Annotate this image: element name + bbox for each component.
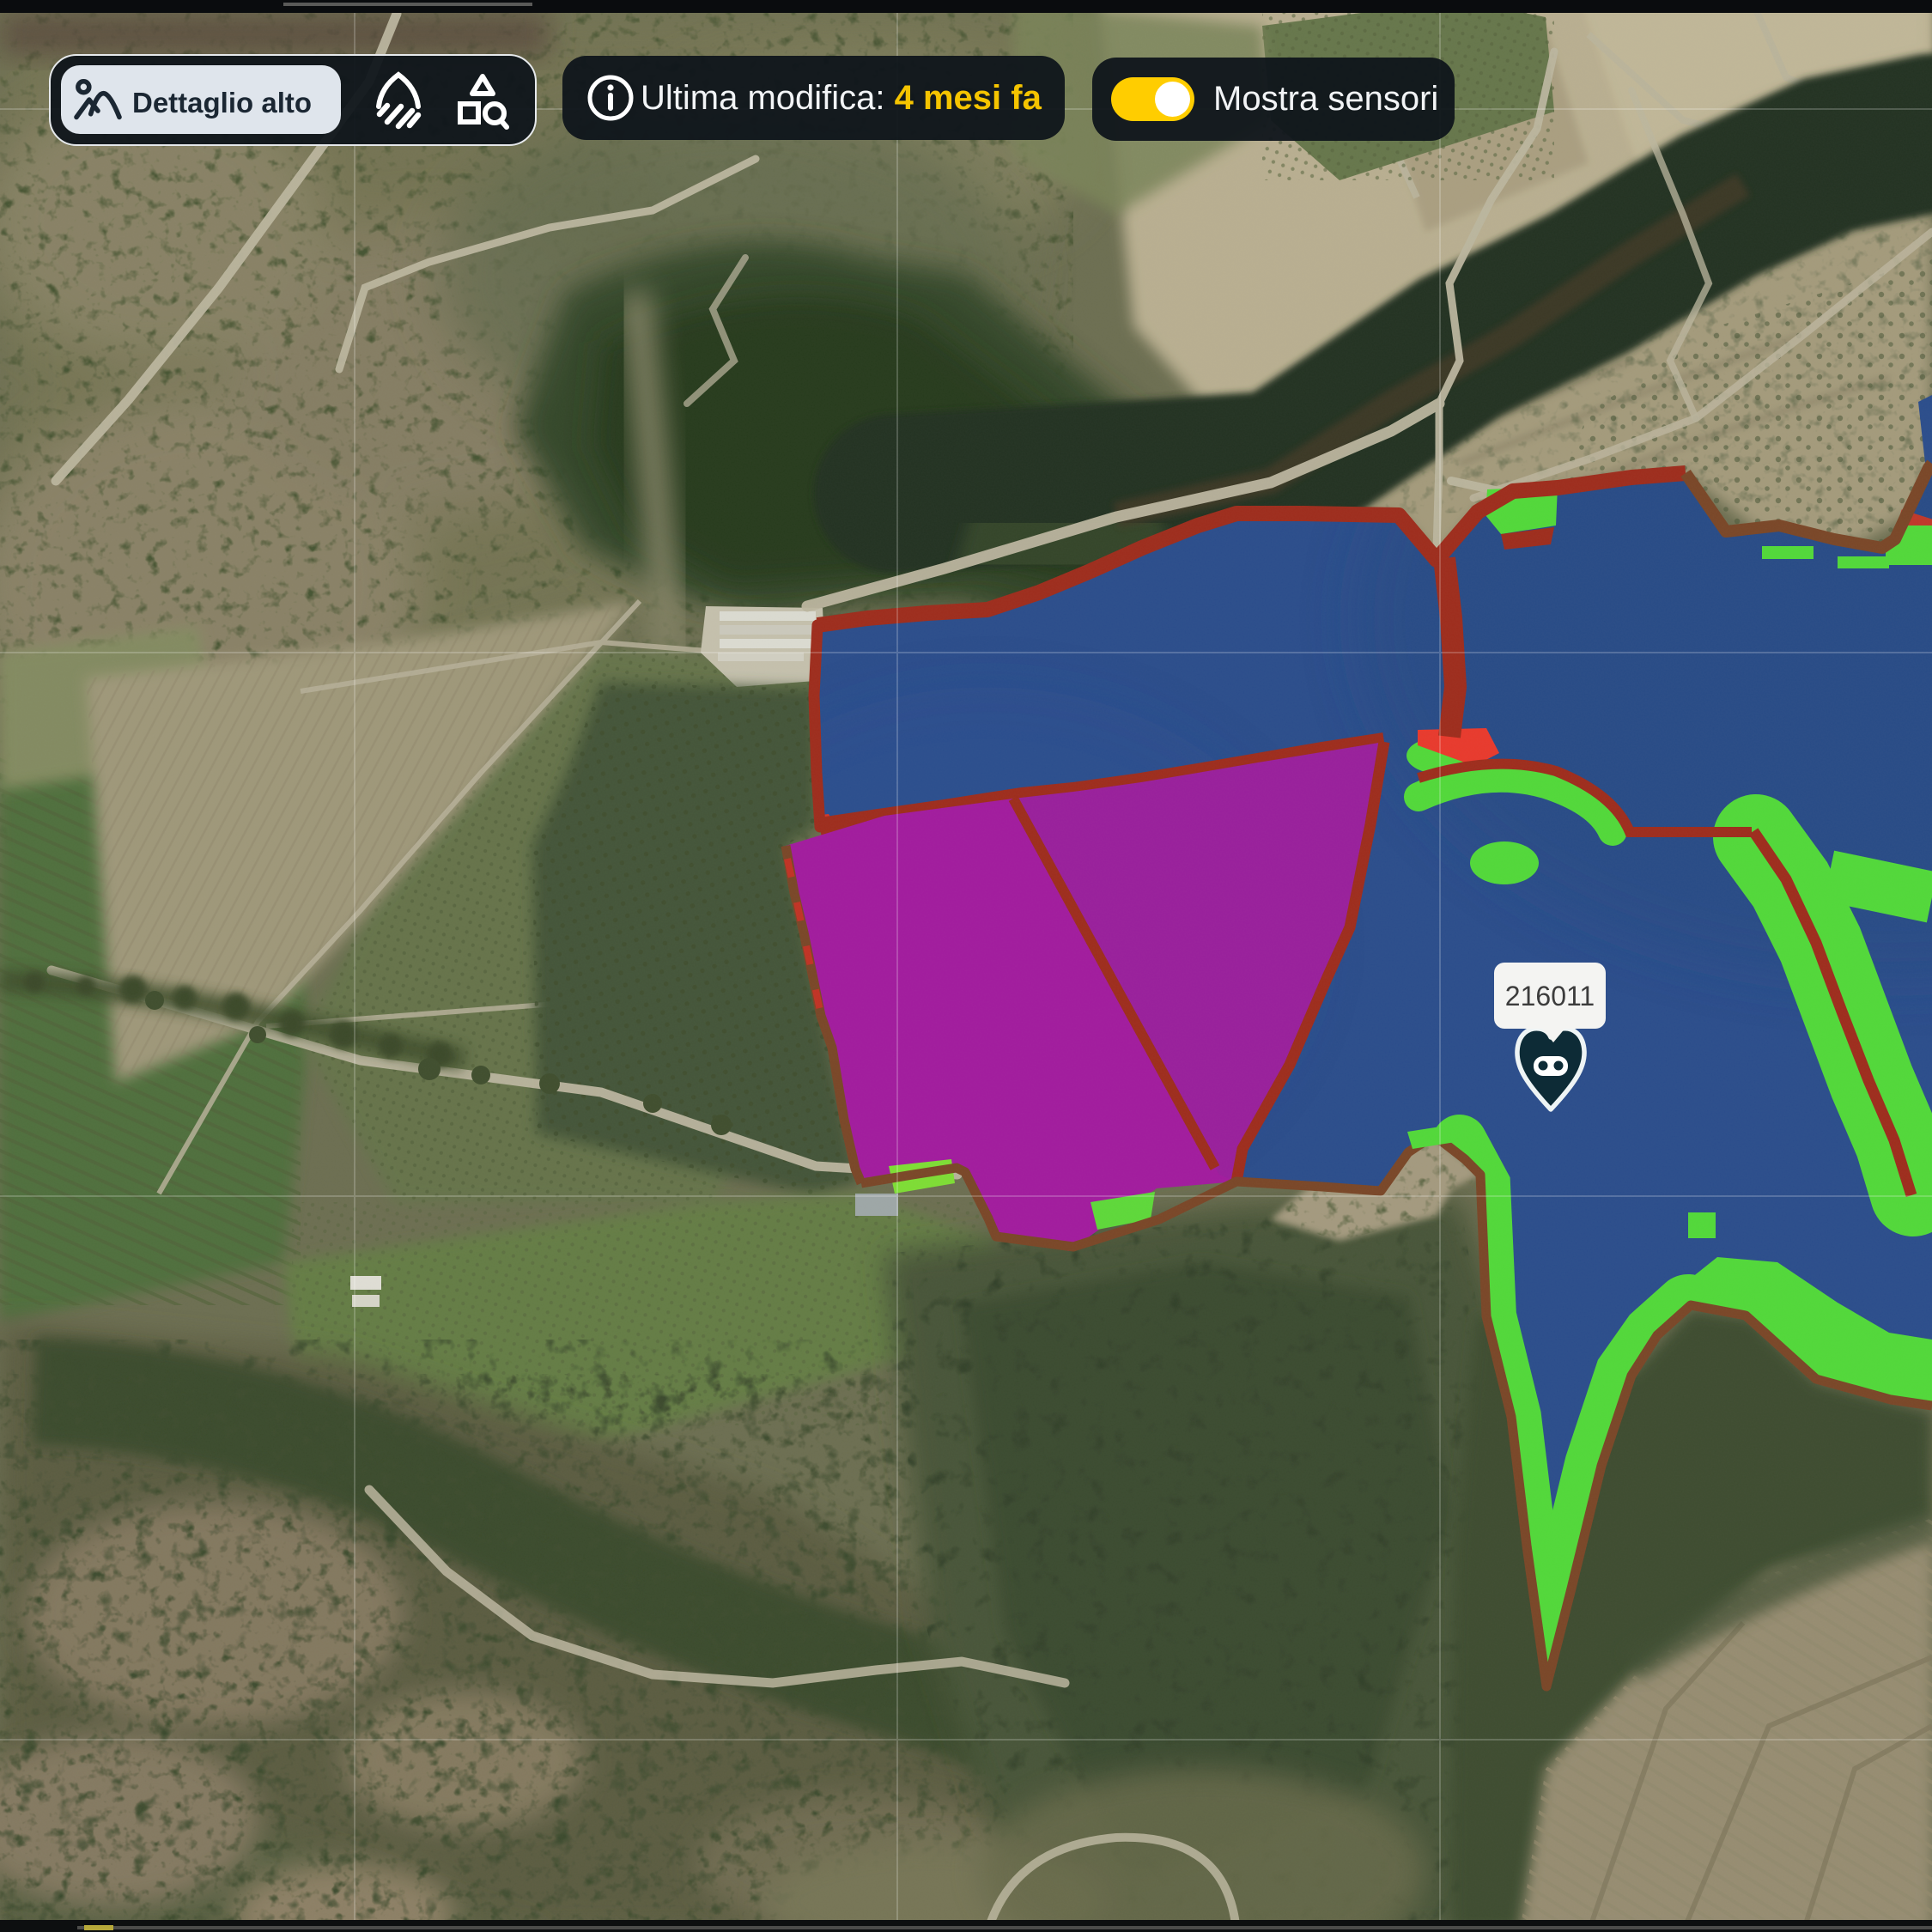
svg-text:216011: 216011 bbox=[1505, 981, 1595, 1012]
